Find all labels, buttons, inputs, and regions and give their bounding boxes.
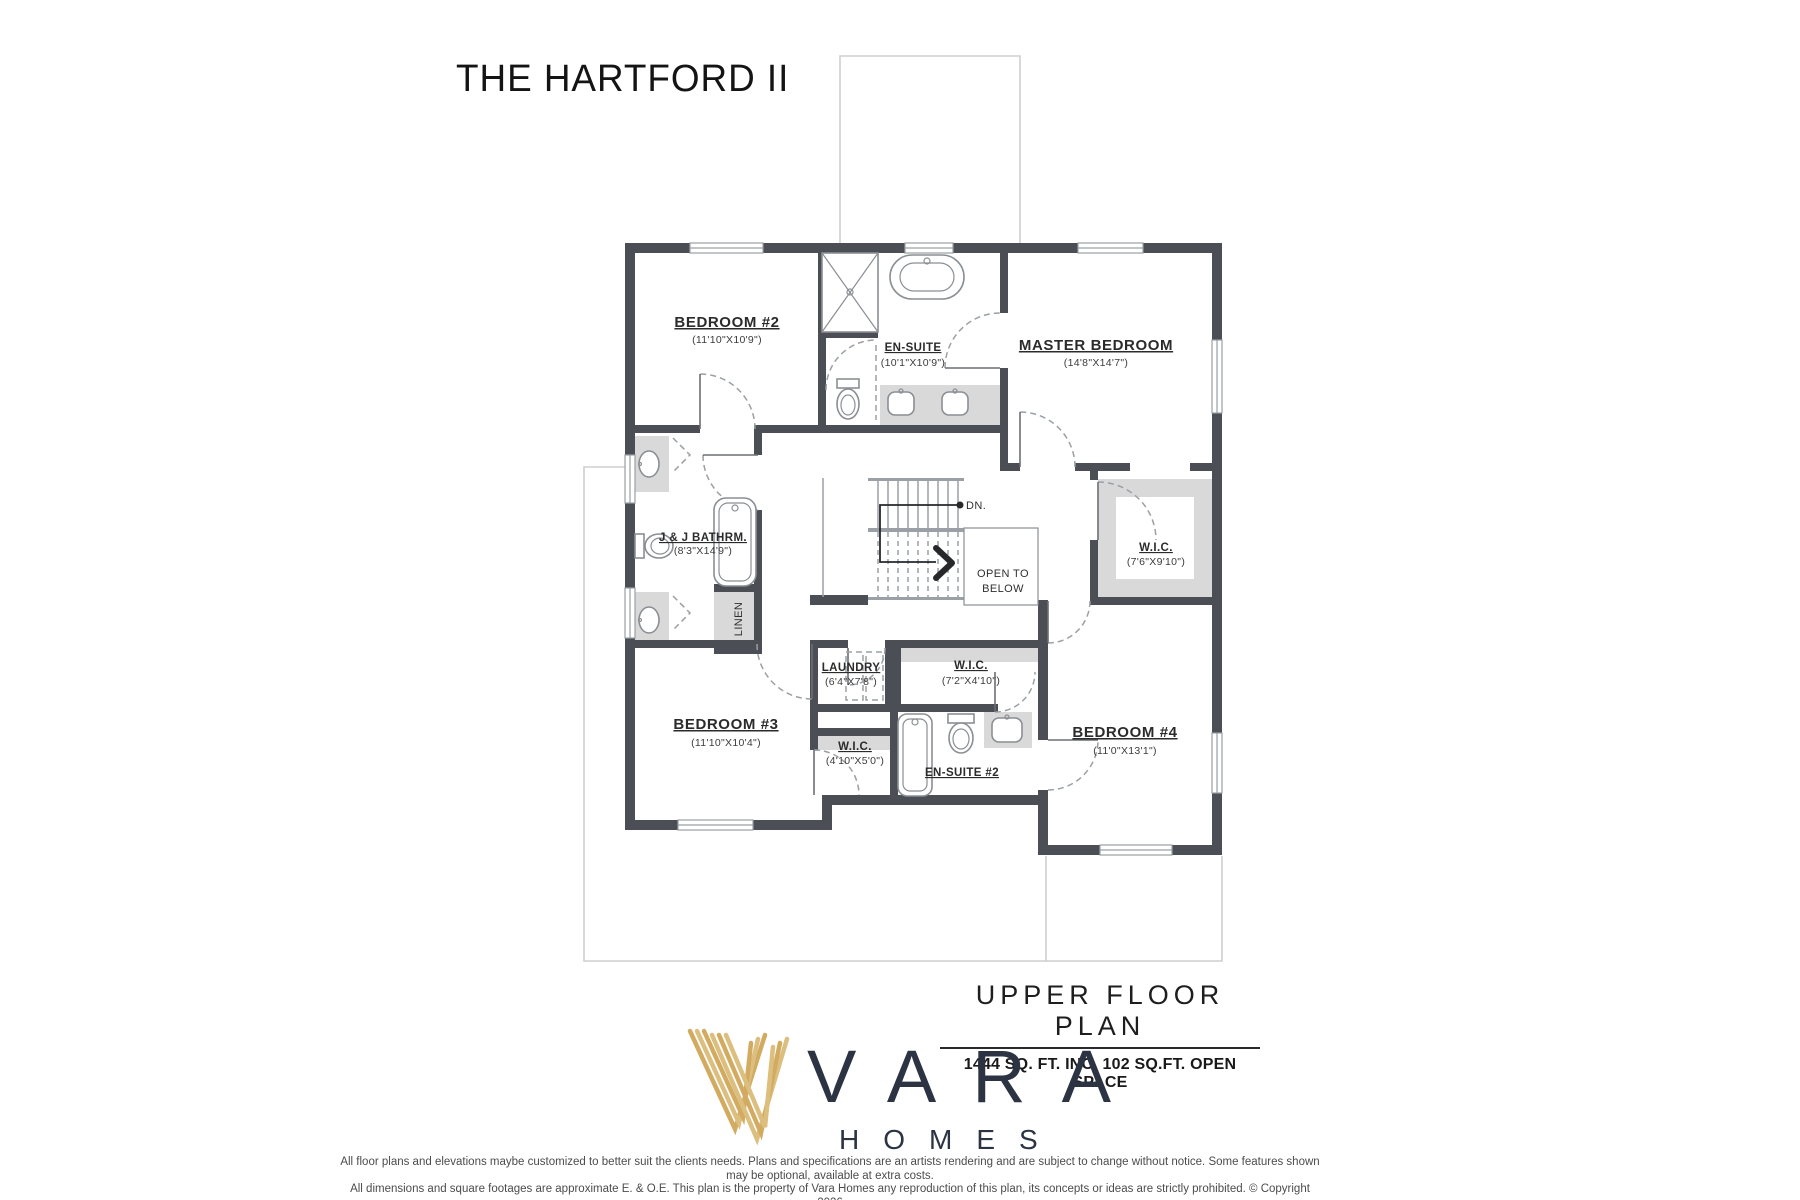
label-open-to-below-2: BELOW	[982, 583, 1024, 595]
label-master-bedroom: MASTER BEDROOM	[1019, 337, 1173, 354]
label-laundry-dims: (6'4"X7'8")	[825, 676, 877, 688]
brand-tagline: HOMES	[839, 1124, 1147, 1156]
label-jj-bathroom: J & J BATHRM.	[659, 532, 747, 544]
label-bedroom3: BEDROOM #3	[673, 716, 778, 733]
label-bedroom3-dims: (11'10"X10'4")	[691, 737, 761, 749]
label-master-bedroom-dims: (14'8"X14'7")	[1064, 357, 1128, 369]
label-jj-bathroom-dims: (8'3"X14'9")	[674, 545, 732, 557]
label-linen: LINEN	[733, 602, 745, 636]
vara-logo-text: VARA HOMES	[807, 1026, 1147, 1156]
floor-plan-page: THE HARTFORD II	[0, 0, 1800, 1200]
vara-logo-mark	[683, 1026, 793, 1146]
label-ensuite-dims: (10'1"X10'9")	[881, 357, 945, 369]
label-ensuite2: EN-SUITE #2	[925, 767, 999, 779]
disclaimer-line-1: All floor plans and elevations maybe cus…	[340, 1156, 1320, 1183]
label-wic-bedroom4-dims: (7'2"X4'10")	[942, 675, 1000, 687]
label-wic-master: W.I.C.	[1139, 542, 1173, 554]
label-open-to-below-1: OPEN TO	[977, 568, 1029, 580]
label-wic-bedroom4: W.I.C.	[954, 660, 988, 672]
label-ensuite: EN-SUITE	[885, 342, 942, 354]
label-laundry: LAUNDRY	[822, 662, 881, 674]
ensuite2-sink	[992, 715, 1022, 742]
shower	[822, 253, 878, 332]
ensuite-toilet	[837, 379, 859, 419]
disclaimer-line-2: All dimensions and square footages are a…	[340, 1183, 1320, 1200]
brand-name: VARA	[807, 1040, 1147, 1114]
label-dn: DN.	[966, 500, 986, 512]
disclaimer: All floor plans and elevations maybe cus…	[340, 1156, 1320, 1200]
ensuite2-toilet	[948, 714, 974, 753]
label-bedroom2: BEDROOM #2	[674, 314, 779, 331]
master-bathtub	[890, 255, 964, 299]
label-bedroom4-dims: (11'0"X13'1")	[1093, 745, 1157, 757]
label-bedroom2-dims: (11'10"X10'9")	[692, 334, 762, 346]
label-wic-master-dims: (7'6"X9'10")	[1127, 556, 1185, 568]
vara-homes-logo: VARA HOMES	[683, 1026, 1147, 1156]
ensuite2-bathtub	[898, 714, 932, 796]
label-bedroom4: BEDROOM #4	[1072, 724, 1177, 741]
floor-plan-drawing: BEDROOM #2 (11'10"X10'9") EN-SUITE (10'1…	[0, 0, 1800, 1200]
label-wic-bedroom3: W.I.C.	[838, 741, 872, 753]
label-wic-bedroom3-dims: (4'10"X5'0")	[826, 755, 884, 767]
